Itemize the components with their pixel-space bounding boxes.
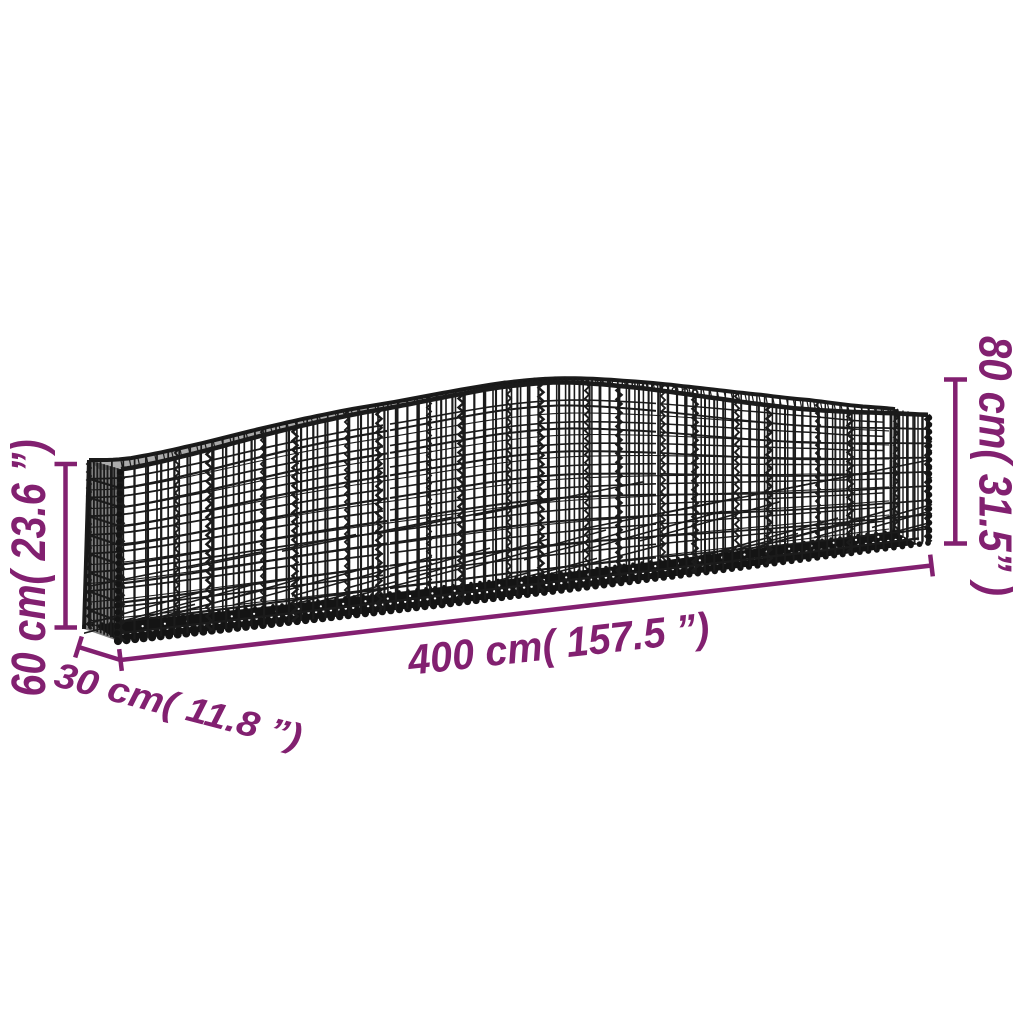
svg-text:60 cm( 23.6 ”): 60 cm( 23.6 ”) — [3, 440, 56, 697]
svg-text:80 cm( 31.5” ): 80 cm( 31.5” ) — [969, 336, 1021, 596]
